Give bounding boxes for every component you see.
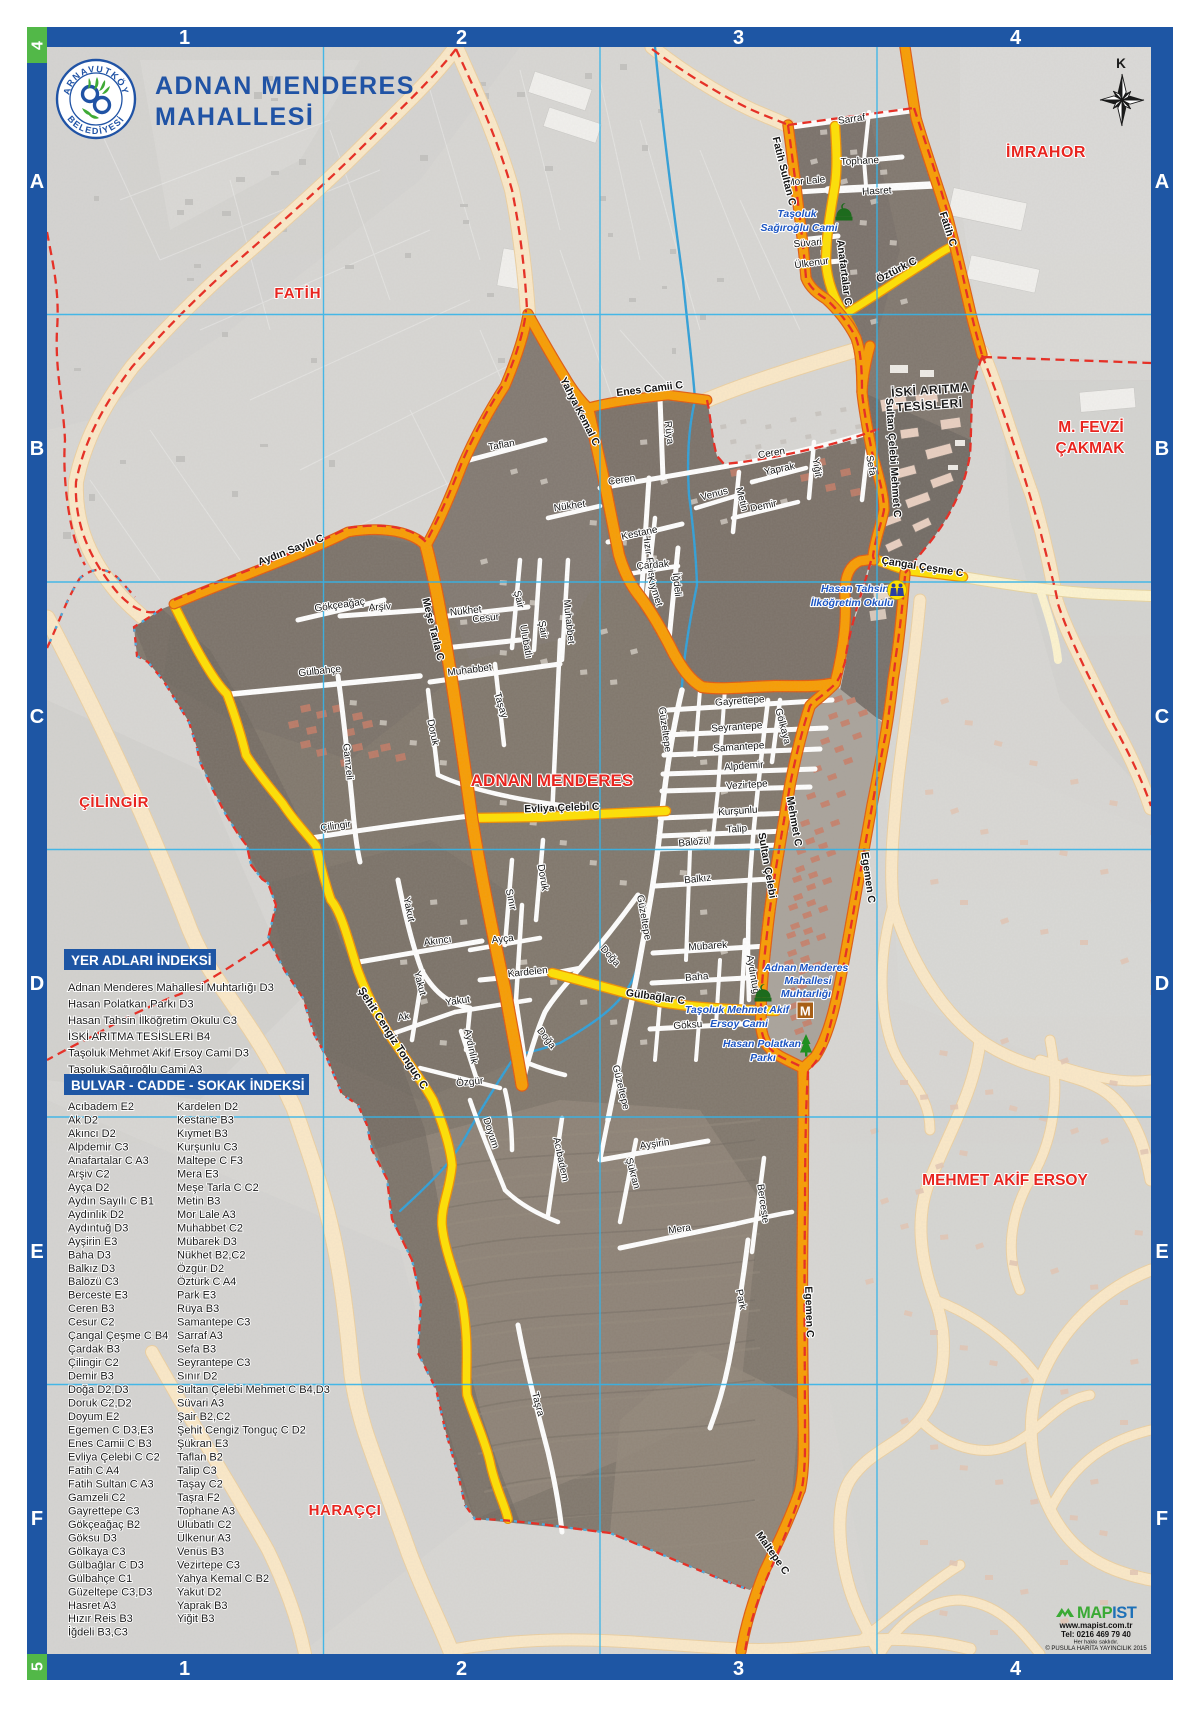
svg-text:2: 2 [456,27,467,49]
svg-text:Şükran E3: Şükran E3 [177,1438,228,1450]
svg-text:Gülbağlar C D3: Gülbağlar C D3 [68,1559,144,1571]
svg-text:Mübarek D3: Mübarek D3 [177,1236,237,1248]
svg-text:Gamzeli C2: Gamzeli C2 [68,1492,125,1504]
svg-text:Rüya B3: Rüya B3 [177,1303,219,1315]
svg-text:YER ADLARI İNDEKSİ: YER ADLARI İNDEKSİ [71,953,212,968]
svg-text:FATİH: FATİH [274,285,321,302]
svg-text:Alpdemir C3: Alpdemir C3 [68,1141,129,1153]
svg-text:Fatih C A4: Fatih C A4 [68,1465,119,1477]
svg-text:Gölkaya C3: Gölkaya C3 [68,1546,125,1558]
svg-text:Baha: Baha [685,971,710,984]
svg-text:Meşe Tarla C C2: Meşe Tarla C C2 [177,1182,259,1194]
svg-text:Demir B3: Demir B3 [68,1371,114,1383]
svg-text:Yahya Kemal C B2: Yahya Kemal C B2 [177,1573,269,1585]
svg-text:Muhabbet C2: Muhabbet C2 [177,1222,243,1234]
svg-text:Fatih Sultan C A3: Fatih Sultan C A3 [68,1478,154,1490]
svg-text:1: 1 [179,1658,190,1680]
svg-text:Ülkenur A3: Ülkenur A3 [177,1532,231,1544]
svg-text:Egemen C D3,E3: Egemen C D3,E3 [68,1425,154,1437]
svg-text:Sağıroğlu Cami: Sağıroğlu Cami [760,222,838,234]
svg-text:Taflan B2: Taflan B2 [177,1452,223,1464]
svg-text:1: 1 [179,27,190,49]
svg-text:Mahallesi: Mahallesi [784,975,832,987]
svg-text:Anafartalar C A3: Anafartalar C A3 [68,1155,149,1167]
svg-text:F: F [1156,1508,1168,1530]
svg-text:Göksu: Göksu [673,1019,703,1032]
svg-text:Baha D3: Baha D3 [68,1249,111,1261]
svg-text:Kardelen D2: Kardelen D2 [177,1101,238,1113]
svg-text:Arşiv C2: Arşiv C2 [68,1168,110,1180]
svg-text:Hasret: Hasret [862,185,892,198]
svg-text:Göksu D3: Göksu D3 [68,1532,117,1544]
svg-text:Berceste E3: Berceste E3 [68,1290,128,1302]
svg-text:Acıbadem E2: Acıbadem E2 [68,1101,134,1113]
svg-text:Gülbahçe C1: Gülbahçe C1 [68,1573,132,1585]
svg-text:Gayrettepe C3: Gayrettepe C3 [68,1505,140,1517]
svg-text:Adnan Menderes: Adnan Menderes [763,962,849,974]
svg-text:ÇİLİNGİR: ÇİLİNGİR [79,794,149,811]
svg-text:MAPIST: MAPIST [1077,1604,1137,1622]
svg-text:Evliya Çelebi C C2: Evliya Çelebi C C2 [68,1452,160,1464]
svg-text:Tophane A3: Tophane A3 [177,1505,235,1517]
svg-text:Çardak B3: Çardak B3 [68,1344,120,1356]
svg-text:© PUSULA HARİTA YAYINCILIK 201: © PUSULA HARİTA YAYINCILIK 2015 [1045,1645,1147,1652]
svg-text:MEHMET AKİF ERSOY: MEHMET AKİF ERSOY [922,1172,1088,1189]
svg-text:K: K [1116,56,1126,71]
svg-text:ADNAN MENDERES: ADNAN MENDERES [471,771,633,790]
svg-text:Yakut D2: Yakut D2 [177,1586,221,1598]
svg-text:Adnan Menderes Mahallesi Muhta: Adnan Menderes Mahallesi Muhtarlığı D3 [68,982,274,994]
svg-text:Sefa B3: Sefa B3 [177,1344,216,1356]
svg-text:D: D [30,973,44,995]
svg-text:Seyrantepe C3: Seyrantepe C3 [177,1357,250,1369]
svg-text:Ayça: Ayça [491,933,515,946]
svg-text:Doruk C2,D2: Doruk C2,D2 [68,1398,132,1410]
svg-text:Muhtarlığı: Muhtarlığı [781,988,831,1000]
svg-text:HARAÇÇI: HARAÇÇI [309,1502,382,1519]
svg-text:Öztürk C A4: Öztürk C A4 [177,1276,236,1288]
svg-text:BULVAR - CADDE - SOKAK İNDEKSİ: BULVAR - CADDE - SOKAK İNDEKSİ [71,1078,305,1093]
svg-text:Yaprak B3: Yaprak B3 [177,1600,228,1612]
svg-text:Taşoluk: Taşoluk [777,208,817,220]
svg-text:C: C [1155,706,1169,728]
svg-text:Güzeltepe C3,D3: Güzeltepe C3,D3 [68,1586,152,1598]
svg-text:İMRAHOR: İMRAHOR [1006,143,1086,161]
svg-text:MAHALLESİ: MAHALLESİ [155,103,314,131]
svg-text:Egemen C: Egemen C [802,1286,816,1338]
svg-text:Talip: Talip [726,823,748,835]
svg-text:Ceren B3: Ceren B3 [68,1303,114,1315]
svg-text:E: E [1155,1241,1168,1263]
svg-text:Doyum E2: Doyum E2 [68,1411,119,1423]
svg-text:M. FEVZİ: M. FEVZİ [1058,419,1123,436]
svg-text:Hasret A3: Hasret A3 [68,1600,116,1612]
svg-text:Tophane: Tophane [840,155,879,168]
svg-text:Parkı: Parkı [750,1052,776,1064]
svg-text:Aydın Sayılı C B1: Aydın Sayılı C B1 [68,1195,154,1207]
svg-text:3: 3 [733,1658,744,1680]
svg-text:Enes Camii C B3: Enes Camii C B3 [68,1438,152,1450]
svg-text:Ayça D2: Ayça D2 [68,1182,109,1194]
svg-text:Yiğit B3: Yiğit B3 [177,1613,215,1625]
svg-text:Özgür D2: Özgür D2 [177,1263,224,1275]
svg-text:Ersoy Cami: Ersoy Cami [710,1018,769,1030]
svg-text:İSKİ ARITMA TESİSLERİ B4: İSKİ ARITMA TESİSLERİ B4 [68,1030,210,1043]
svg-text:Samantepe C3: Samantepe C3 [177,1317,250,1329]
svg-text:Hasan Polatkan Parkı D3: Hasan Polatkan Parkı D3 [68,998,194,1010]
svg-text:Tel: 0216 469 79 40: Tel: 0216 469 79 40 [1061,1630,1131,1639]
svg-text:Hızır Reis B3: Hızır Reis B3 [68,1613,133,1625]
svg-text:Şehit Cengiz Tonguç C D2: Şehit Cengiz Tonguç C D2 [177,1425,306,1437]
svg-text:Kestane B3: Kestane B3 [177,1115,234,1127]
svg-text:5: 5 [30,1662,47,1671]
svg-text:Mera E3: Mera E3 [177,1168,219,1180]
svg-text:Venüs B3: Venüs B3 [177,1546,224,1558]
svg-text:Kıymet B3: Kıymet B3 [177,1128,228,1140]
svg-text:Aydıntuğ D3: Aydıntuğ D3 [68,1222,128,1234]
svg-text:Park E3: Park E3 [177,1290,216,1302]
svg-text:M: M [800,1003,811,1018]
svg-text:4: 4 [1010,27,1022,49]
svg-text:D: D [1155,973,1169,995]
svg-text:Maltepe C F3: Maltepe C F3 [177,1155,243,1167]
svg-text:Doğa D2,D3: Doğa D2,D3 [68,1384,129,1396]
svg-text:Ak D2: Ak D2 [68,1115,98,1127]
svg-text:Balözü C3: Balözü C3 [68,1276,119,1288]
svg-text:Taşoluk Mehmet Akif Ersoy Cami: Taşoluk Mehmet Akif Ersoy Cami D3 [68,1048,249,1060]
svg-text:Her hakkı saklıdır.: Her hakkı saklıdır. [1074,1640,1119,1646]
svg-text:İğdeli B3,C3: İğdeli B3,C3 [68,1626,128,1639]
svg-text:A: A [1155,171,1169,193]
svg-text:Çangal Çeşme C B4: Çangal Çeşme C B4 [68,1330,168,1342]
svg-text:İlköğretim Okulu: İlköğretim Okulu [811,596,894,609]
svg-text:Cesur C2: Cesur C2 [68,1317,114,1329]
svg-text:Mor Lale A3: Mor Lale A3 [177,1209,236,1221]
svg-text:Vezirtepe C3: Vezirtepe C3 [177,1559,240,1571]
svg-text:Çilingir C2: Çilingir C2 [68,1357,119,1369]
svg-text:Şair B2,C2: Şair B2,C2 [177,1411,230,1423]
svg-text:Taşay C2: Taşay C2 [177,1478,223,1490]
svg-text:Talip C3: Talip C3 [177,1465,217,1477]
svg-text:Aydınlık D2: Aydınlık D2 [68,1209,124,1221]
svg-text:E: E [30,1241,43,1263]
svg-text:A: A [30,171,44,193]
svg-text:Gökçeağaç B2: Gökçeağaç B2 [68,1519,140,1531]
svg-text:Ayşirin E3: Ayşirin E3 [68,1236,117,1248]
svg-text:Sarraf A3: Sarraf A3 [177,1330,223,1342]
svg-text:Akıncı D2: Akıncı D2 [68,1128,116,1140]
svg-text:www.mapist.com.tr: www.mapist.com.tr [1058,1621,1132,1630]
svg-text:Metin B3: Metin B3 [177,1195,220,1207]
svg-text:2: 2 [456,1658,467,1680]
svg-text:Kurşunlu C3: Kurşunlu C3 [177,1141,238,1153]
svg-text:Arşiv: Arşiv [368,601,391,614]
svg-text:Süvari A3: Süvari A3 [177,1398,224,1410]
svg-text:Sultan Çelebi Mehmet C B4,D3: Sultan Çelebi Mehmet C B4,D3 [177,1384,330,1396]
svg-text:Hasan Polatkan: Hasan Polatkan [723,1038,801,1050]
svg-text:Hasan Tahsin İlköğretim Okulu: Hasan Tahsin İlköğretim Okulu C3 [68,1014,237,1027]
svg-text:Hasan Tahsin: Hasan Tahsin [821,583,889,595]
svg-text:4: 4 [30,41,47,50]
svg-text:Taşoluk Mehmet Akif: Taşoluk Mehmet Akif [685,1004,791,1016]
svg-text:Sınır D2: Sınır D2 [177,1371,217,1383]
svg-text:4: 4 [1010,1658,1022,1680]
svg-text:B: B [1155,438,1169,460]
svg-text:C: C [30,706,44,728]
svg-text:Balkız D3: Balkız D3 [68,1263,115,1275]
svg-text:B: B [30,438,44,460]
svg-text:ADNAN MENDERES: ADNAN MENDERES [155,72,415,100]
svg-text:ÇAKMAK: ÇAKMAK [1056,440,1126,457]
svg-text:3: 3 [733,27,744,49]
svg-text:Taşra F2: Taşra F2 [177,1492,220,1504]
svg-text:F: F [31,1508,43,1530]
svg-text:Ulubatlı C2: Ulubatlı C2 [177,1519,231,1531]
svg-text:Nükhet B2,C2: Nükhet B2,C2 [177,1249,245,1261]
